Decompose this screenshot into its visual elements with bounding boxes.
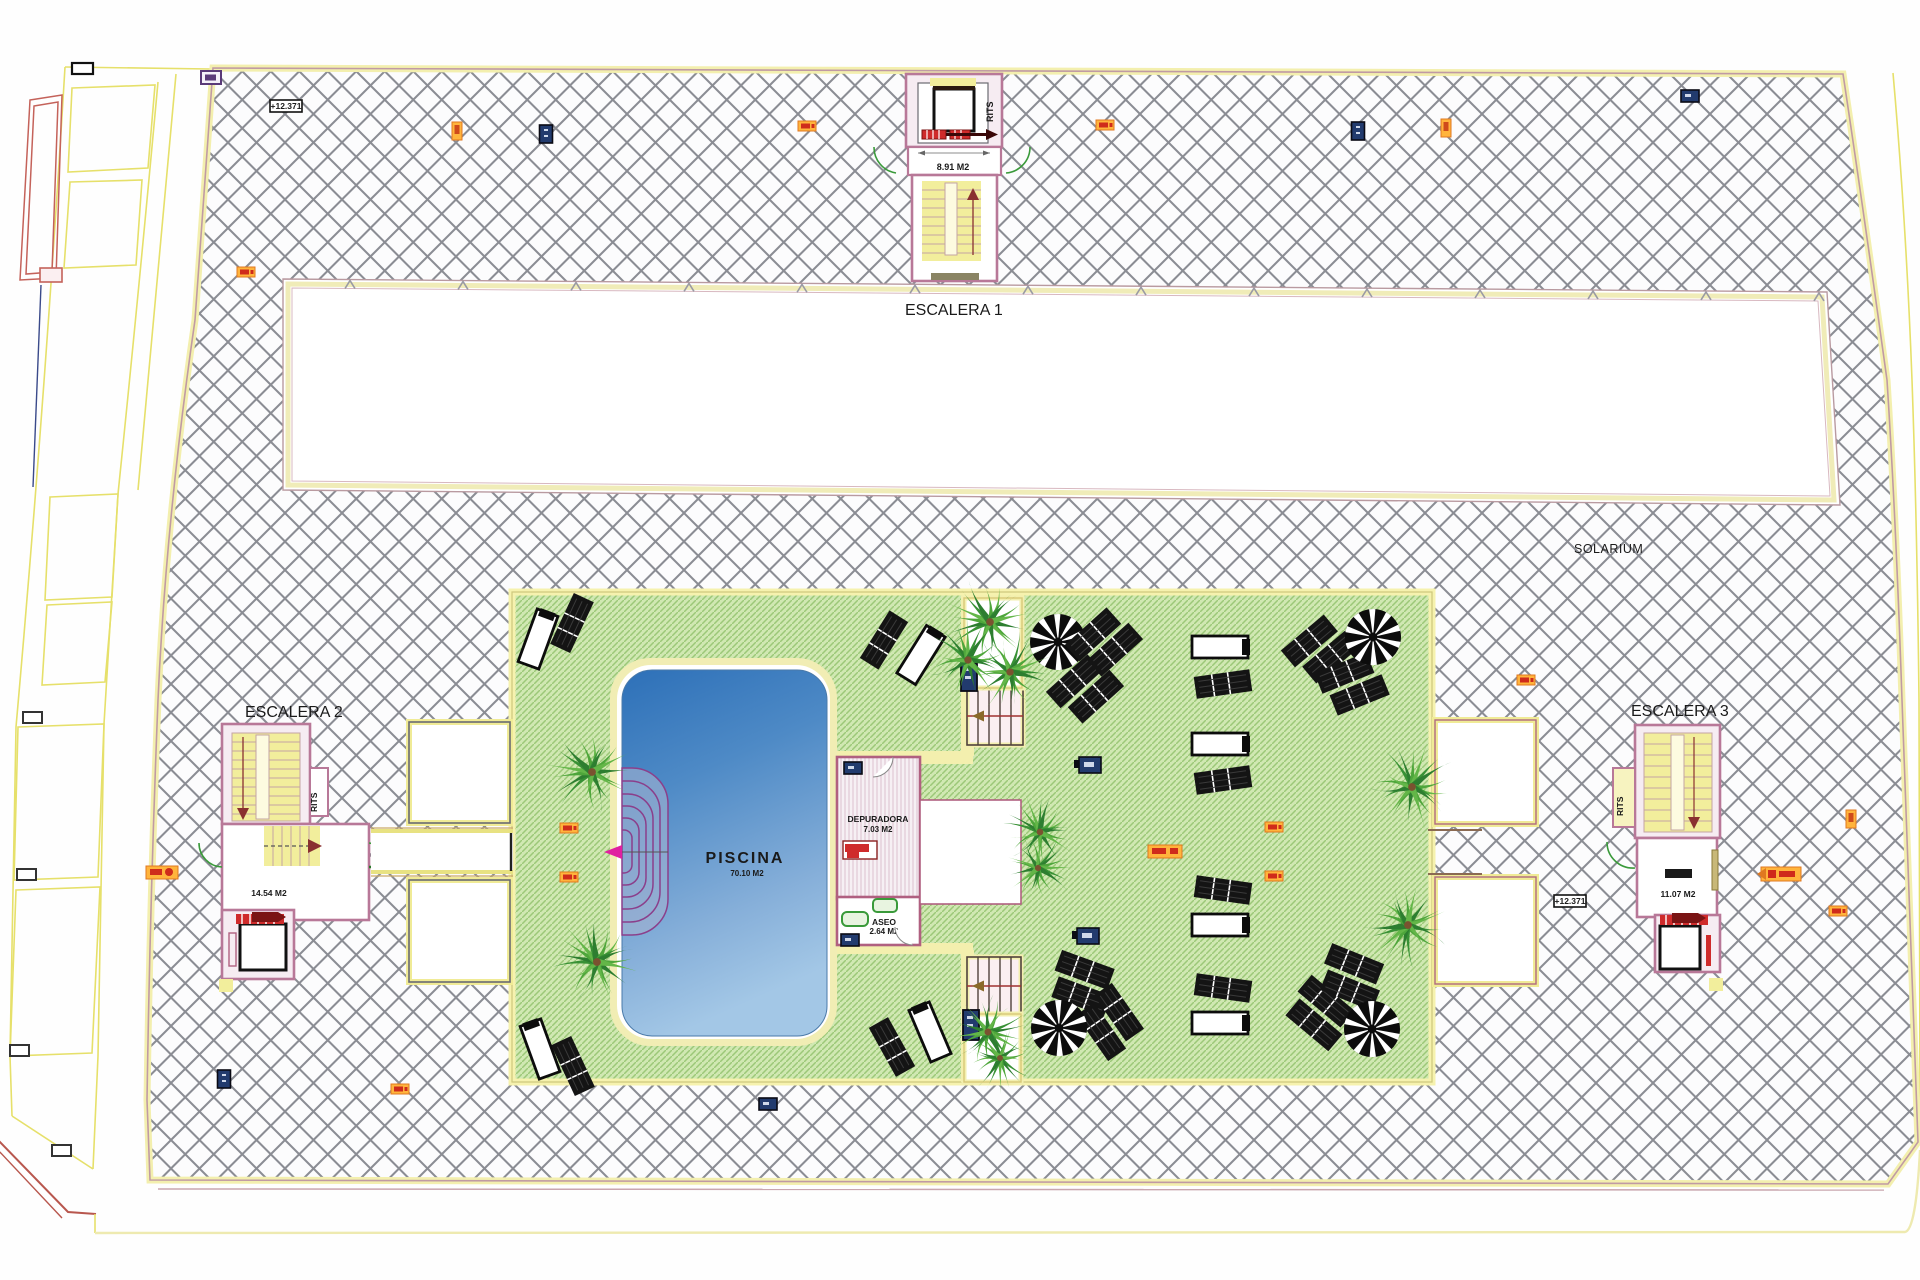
svg-text:ESCALERA 1: ESCALERA 1 (905, 302, 1003, 319)
svg-text:DEPURADORA: DEPURADORA (848, 814, 909, 824)
svg-text:SOLARIUM: SOLARIUM (1574, 542, 1643, 556)
svg-text:RITS: RITS (1615, 796, 1625, 816)
svg-text:8.91 M2: 8.91 M2 (937, 162, 970, 172)
svg-text:11.07 M2: 11.07 M2 (1661, 889, 1696, 899)
svg-text:14.54 M2: 14.54 M2 (251, 888, 287, 898)
svg-text:PISCINA: PISCINA (706, 850, 785, 867)
svg-text:70.10 M2: 70.10 M2 (730, 869, 764, 878)
svg-text:RITS: RITS (985, 101, 995, 122)
svg-text:RITS: RITS (309, 792, 319, 812)
svg-text:ESCALERA 3: ESCALERA 3 (1631, 703, 1729, 720)
svg-text:ESCALERA 2: ESCALERA 2 (245, 704, 343, 721)
svg-text:ASEO: ASEO (872, 917, 896, 927)
svg-text:7.03 M2: 7.03 M2 (864, 825, 893, 834)
